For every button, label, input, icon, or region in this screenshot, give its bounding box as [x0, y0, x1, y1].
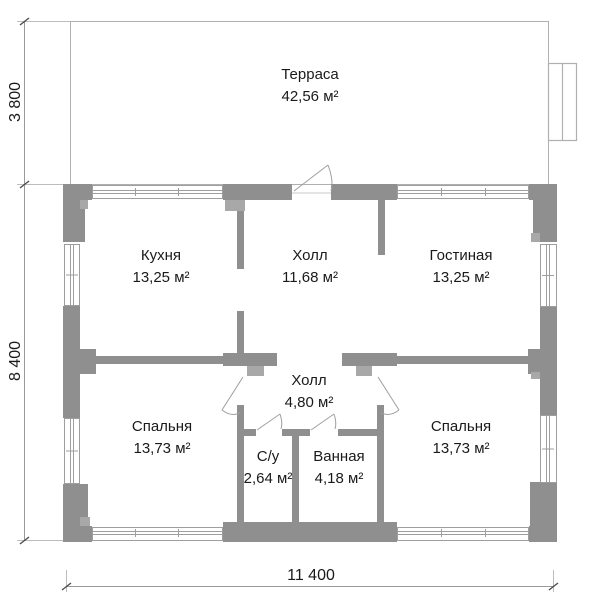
floor-plan: Терраса 42,56 м² Кухня 13,25 м² Холл 11,… [0, 0, 600, 604]
terrace-steps [549, 64, 577, 141]
room-name: Ванная [313, 446, 364, 468]
room-label-kitchen: Кухня 13,25 м² [132, 245, 189, 289]
room-name: С/у [244, 446, 293, 468]
window-bedroom-left-bottom [93, 528, 223, 541]
window-bedroom-right-bottom [398, 528, 529, 541]
door-wc [257, 414, 282, 430]
window-living-top [398, 186, 529, 199]
room-label-bedroom-left: Спальня 13,73 м² [132, 416, 192, 460]
room-area: 13,73 м² [431, 438, 491, 460]
room-area: 4,18 м² [313, 468, 364, 490]
window-bedroom-left [65, 419, 80, 484]
door-bath [311, 414, 336, 430]
room-name: Терраса [281, 64, 339, 86]
window-kitchen-top [93, 186, 223, 199]
room-name: Холл [285, 370, 334, 392]
window-kitchen-left [65, 245, 80, 306]
room-area: 4,80 м² [285, 392, 334, 414]
room-area: 13,25 м² [132, 267, 189, 289]
room-label-terrace: Терраса 42,56 м² [281, 64, 339, 108]
room-label-living: Гостиная 13,25 м² [430, 245, 493, 289]
dimension-house-depth: 8 400 [7, 341, 25, 381]
room-name: Кухня [132, 245, 189, 267]
room-label-wc: С/у 2,64 м² [244, 446, 293, 490]
room-label-hall-lower: Холл 4,80 м² [285, 370, 334, 414]
room-area: 13,25 м² [430, 267, 493, 289]
room-label-bedroom-right: Спальня 13,73 м² [431, 416, 491, 460]
dimension-house-width: 11 400 [287, 567, 335, 585]
window-bedroom-right-side [541, 416, 557, 483]
room-name: Спальня [431, 416, 491, 438]
room-label-hall-upper: Холл 11,68 м² [282, 245, 338, 289]
room-area: 2,64 м² [244, 468, 293, 490]
door-entry [292, 165, 332, 193]
room-area: 42,56 м² [281, 86, 339, 108]
room-label-bath: Ванная 4,18 м² [313, 446, 364, 490]
window-living-right [541, 245, 557, 307]
room-area: 11,68 м² [282, 267, 338, 289]
room-name: Холл [282, 245, 338, 267]
dimension-terrace-depth: 3 800 [7, 82, 25, 122]
room-area: 13,73 м² [132, 438, 192, 460]
room-name: Гостиная [430, 245, 493, 267]
room-name: Спальня [132, 416, 192, 438]
